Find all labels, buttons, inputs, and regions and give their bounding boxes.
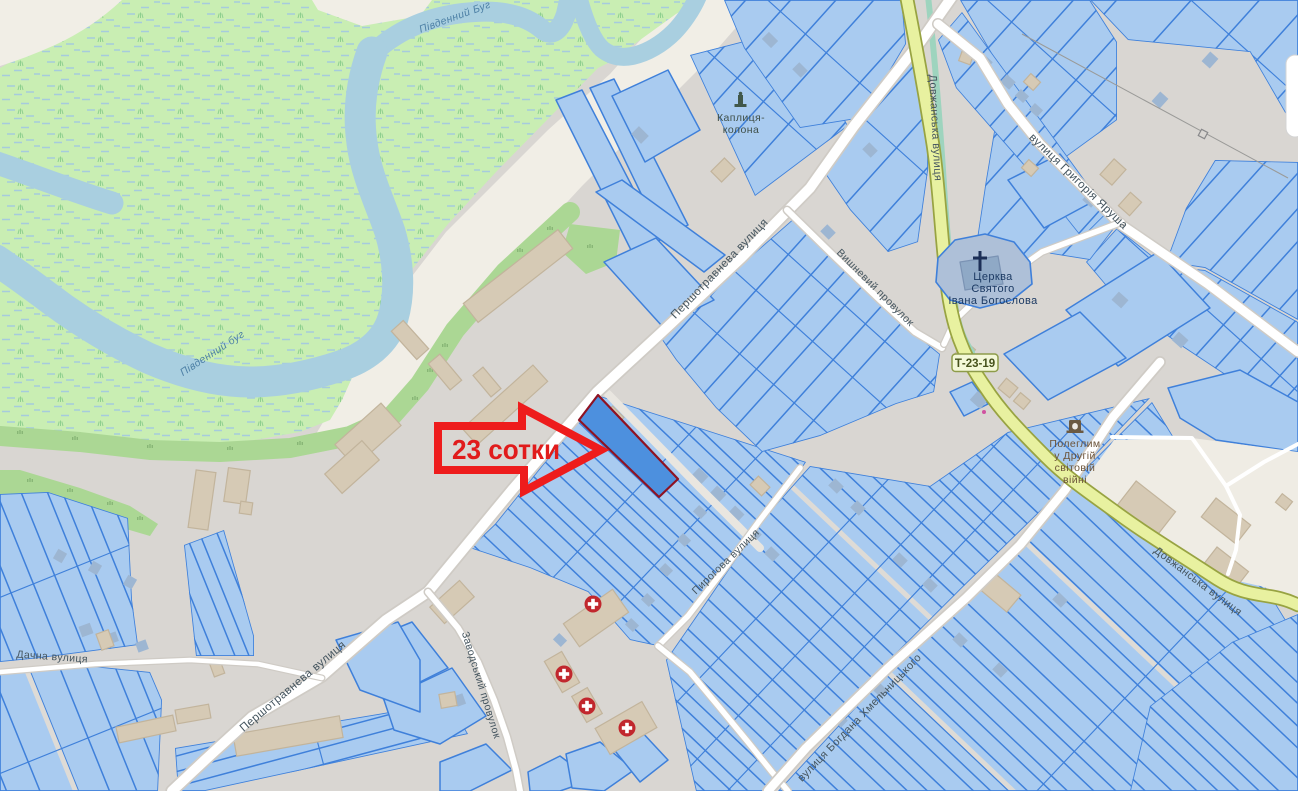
- svg-text:Т-23-19: Т-23-19: [955, 358, 995, 370]
- svg-text:23 сотки: 23 сотки: [452, 434, 560, 465]
- svg-text:світовій: світовій: [1055, 462, 1096, 474]
- svg-text:у Другій: у Другій: [1054, 450, 1095, 462]
- svg-text:війні: війні: [1063, 474, 1087, 486]
- svg-text:Святого: Святого: [971, 283, 1014, 295]
- svg-text:колона: колона: [723, 124, 759, 136]
- svg-text:Полеглим: Полеглим: [1049, 438, 1100, 450]
- svg-text:Церква: Церква: [973, 271, 1013, 283]
- svg-text:Івана Богослова: Івана Богослова: [948, 295, 1038, 307]
- svg-text:Каплиця-: Каплиця-: [717, 112, 765, 124]
